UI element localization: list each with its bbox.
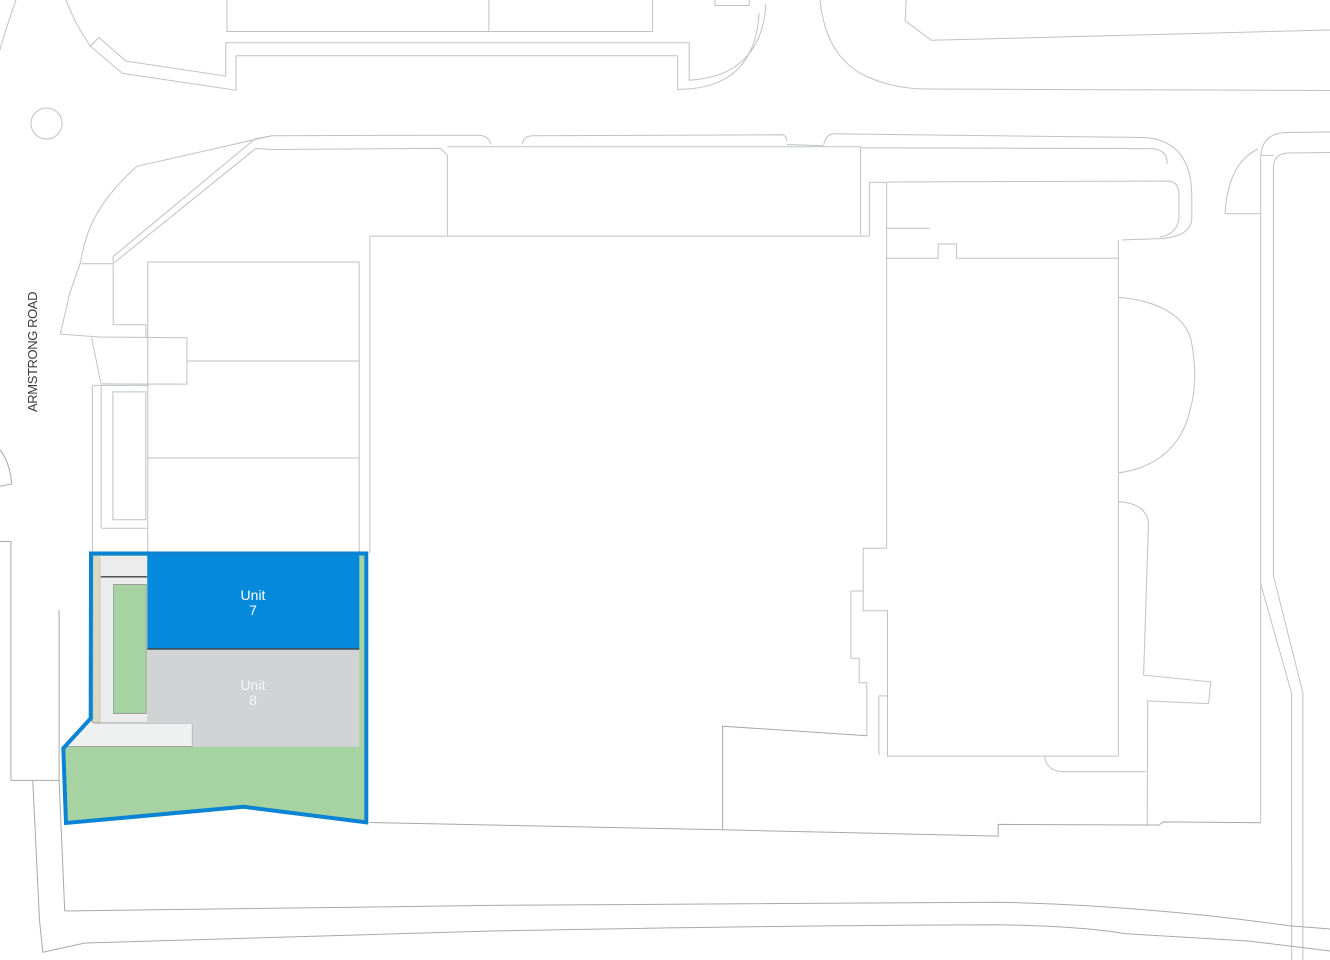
svg-text:Unit: Unit [241,677,266,693]
svg-text:7: 7 [249,602,257,618]
svg-text:ARMSTRONG ROAD: ARMSTRONG ROAD [25,292,40,412]
svg-text:Unit: Unit [241,587,266,603]
svg-text:8: 8 [249,692,257,708]
